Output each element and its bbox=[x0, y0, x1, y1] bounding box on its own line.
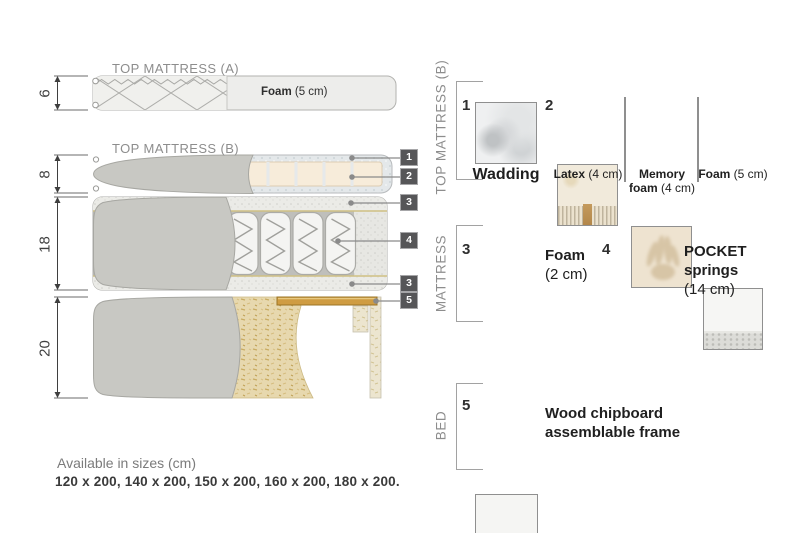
top-mattress-b-section bbox=[93, 155, 392, 194]
top-mattress-a-title: TOP MATTRESS (A) bbox=[112, 61, 239, 76]
mattress-button bbox=[93, 78, 99, 84]
mattress-button bbox=[93, 102, 99, 108]
mattress-infographic: TOP MATTRESS (A) TOP MATTRESS (B) 6 8 18… bbox=[0, 0, 800, 533]
legend-item-number-5: 5 bbox=[462, 397, 470, 414]
foam-layer-label: Foam (5 cm) bbox=[261, 86, 327, 98]
callout-tag-2: 2 bbox=[400, 168, 418, 185]
pocket-springs-caption: POCKET springs (14 cm) bbox=[684, 242, 747, 299]
fabric-cover bbox=[94, 197, 236, 290]
side-rail bbox=[370, 297, 381, 398]
mattress-button bbox=[93, 157, 98, 162]
dim-label-8: 8 bbox=[37, 164, 54, 186]
callout-tag-5: 5 bbox=[400, 292, 418, 309]
fabric-cover bbox=[94, 155, 254, 194]
legend-section-bed: BED bbox=[434, 361, 449, 491]
section-bracket bbox=[456, 225, 483, 322]
available-sizes-title: Available in sizes (cm) bbox=[57, 455, 196, 471]
legend-item-number-4: 4 bbox=[602, 241, 610, 258]
foam-2cm-swatch bbox=[475, 494, 538, 533]
top-mattress-b-title: TOP MATTRESS (B) bbox=[112, 141, 239, 156]
legend-section-mattress: MATTRESS bbox=[434, 209, 449, 339]
foam-blocks bbox=[244, 162, 382, 186]
corner-block bbox=[353, 306, 368, 332]
fabric-cover bbox=[94, 297, 241, 398]
callout-tag-4: 4 bbox=[400, 232, 418, 249]
foam-2cm-caption: Foam (2 cm) bbox=[545, 246, 588, 284]
memory-foam-swatch bbox=[631, 226, 692, 288]
wadding-swatch bbox=[475, 102, 537, 164]
mattress-button bbox=[93, 186, 98, 191]
bed-section bbox=[94, 297, 382, 398]
mattress-section bbox=[93, 197, 387, 290]
chipboard-panel bbox=[230, 297, 313, 398]
legend-item-number-2: 2 bbox=[545, 97, 553, 114]
legend-item-number-3: 3 bbox=[462, 241, 470, 258]
dimension-lines bbox=[54, 76, 88, 398]
dim-label-20: 20 bbox=[37, 338, 54, 360]
legend-item-number-1: 1 bbox=[462, 97, 470, 114]
callout-tag-1: 1 bbox=[400, 149, 418, 166]
chipboard-caption: Wood chipboard assemblable frame bbox=[545, 404, 680, 442]
top-mattress-a-section bbox=[93, 76, 396, 110]
dim-label-6: 6 bbox=[37, 83, 54, 105]
foam-5cm-caption: Foam (5 cm) bbox=[690, 167, 776, 181]
wadding-caption: Wadding bbox=[463, 166, 549, 184]
available-sizes-list: 120 x 200, 140 x 200, 150 x 200, 160 x 2… bbox=[55, 474, 400, 489]
legend-section-top-mattress-b: TOP MATTRESS (B) bbox=[434, 65, 449, 195]
callout-tag-3-bottom: 3 bbox=[400, 275, 418, 292]
dim-label-18: 18 bbox=[37, 234, 54, 256]
callout-tag-3-top: 3 bbox=[400, 194, 418, 211]
